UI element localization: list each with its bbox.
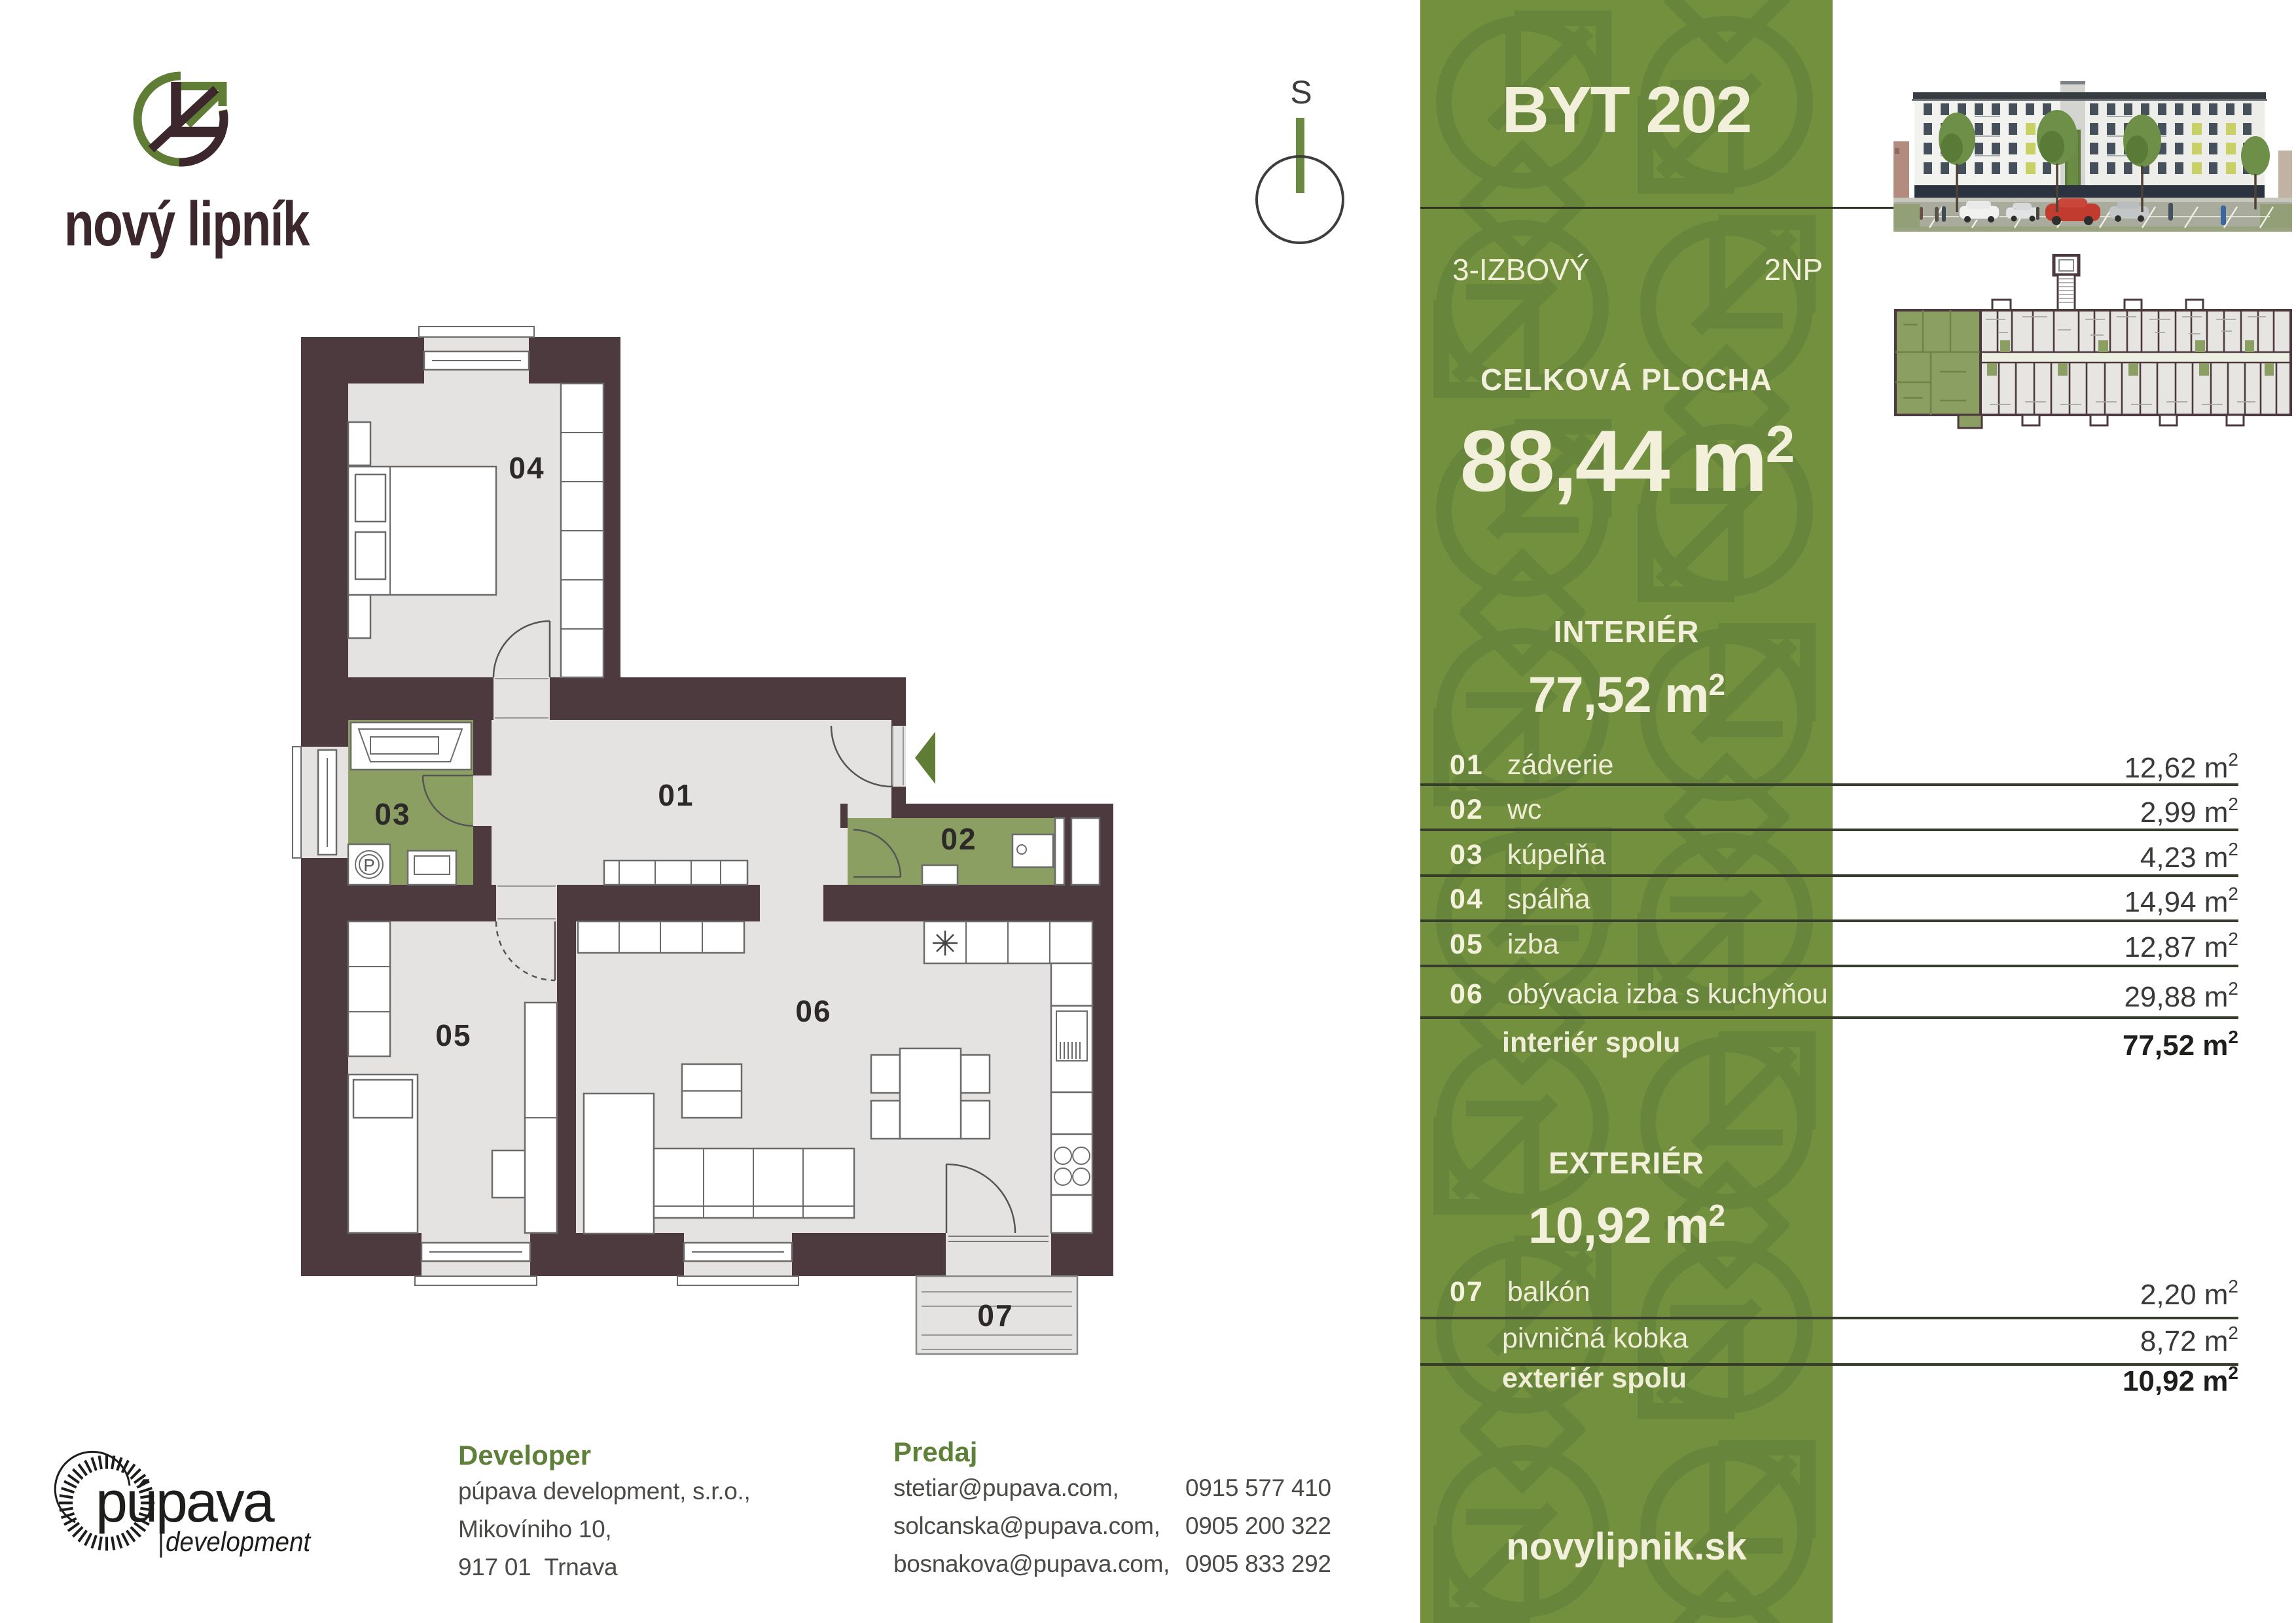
svg-text:S: S <box>1290 74 1312 111</box>
svg-text:03: 03 <box>374 797 410 831</box>
svg-text:07: 07 <box>977 1298 1013 1332</box>
svg-text:development: development <box>166 1525 312 1557</box>
svg-text:05: 05 <box>435 1018 471 1052</box>
svg-text:púpava: púpava <box>96 1469 275 1534</box>
svg-text:P: P <box>363 855 374 875</box>
svg-text:04: 04 <box>509 451 545 485</box>
svg-text:01: 01 <box>658 778 694 812</box>
svg-text:02: 02 <box>941 822 977 856</box>
svg-text:06: 06 <box>795 994 831 1028</box>
